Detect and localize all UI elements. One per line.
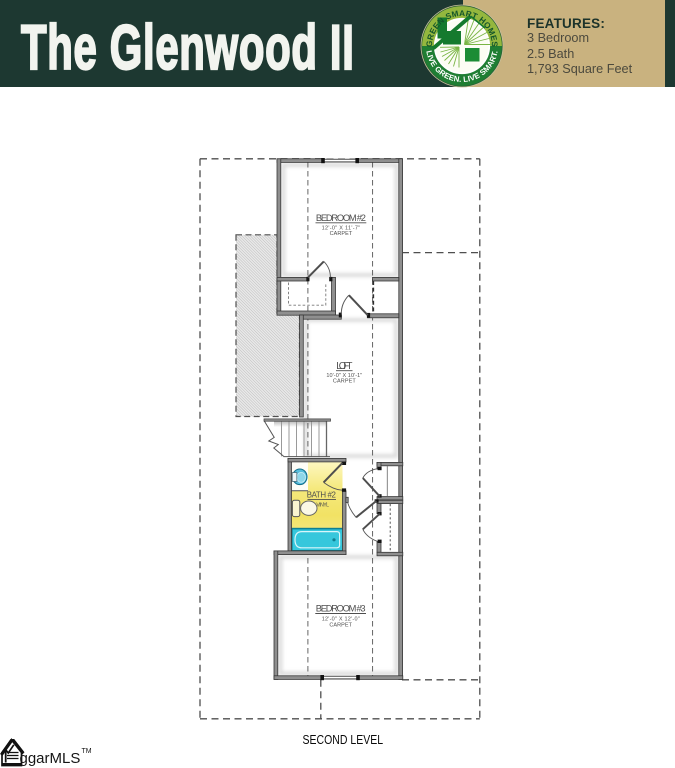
- svg-text:BEDROOM #2: BEDROOM #2: [316, 213, 366, 223]
- svg-text:TM: TM: [82, 748, 92, 755]
- svg-text:BEDROOM #3: BEDROOM #3: [316, 604, 366, 614]
- svg-text:CARPET: CARPET: [330, 231, 353, 237]
- svg-text:SECOND LEVEL: SECOND LEVEL: [303, 733, 384, 747]
- svg-text:BATH #2: BATH #2: [307, 491, 336, 500]
- svg-text:VINYL: VINYL: [316, 503, 329, 509]
- svg-text:CARPET: CARPET: [333, 378, 357, 384]
- svg-text:CARPET: CARPET: [329, 622, 352, 628]
- svg-text:ggarMLS: ggarMLS: [20, 750, 81, 767]
